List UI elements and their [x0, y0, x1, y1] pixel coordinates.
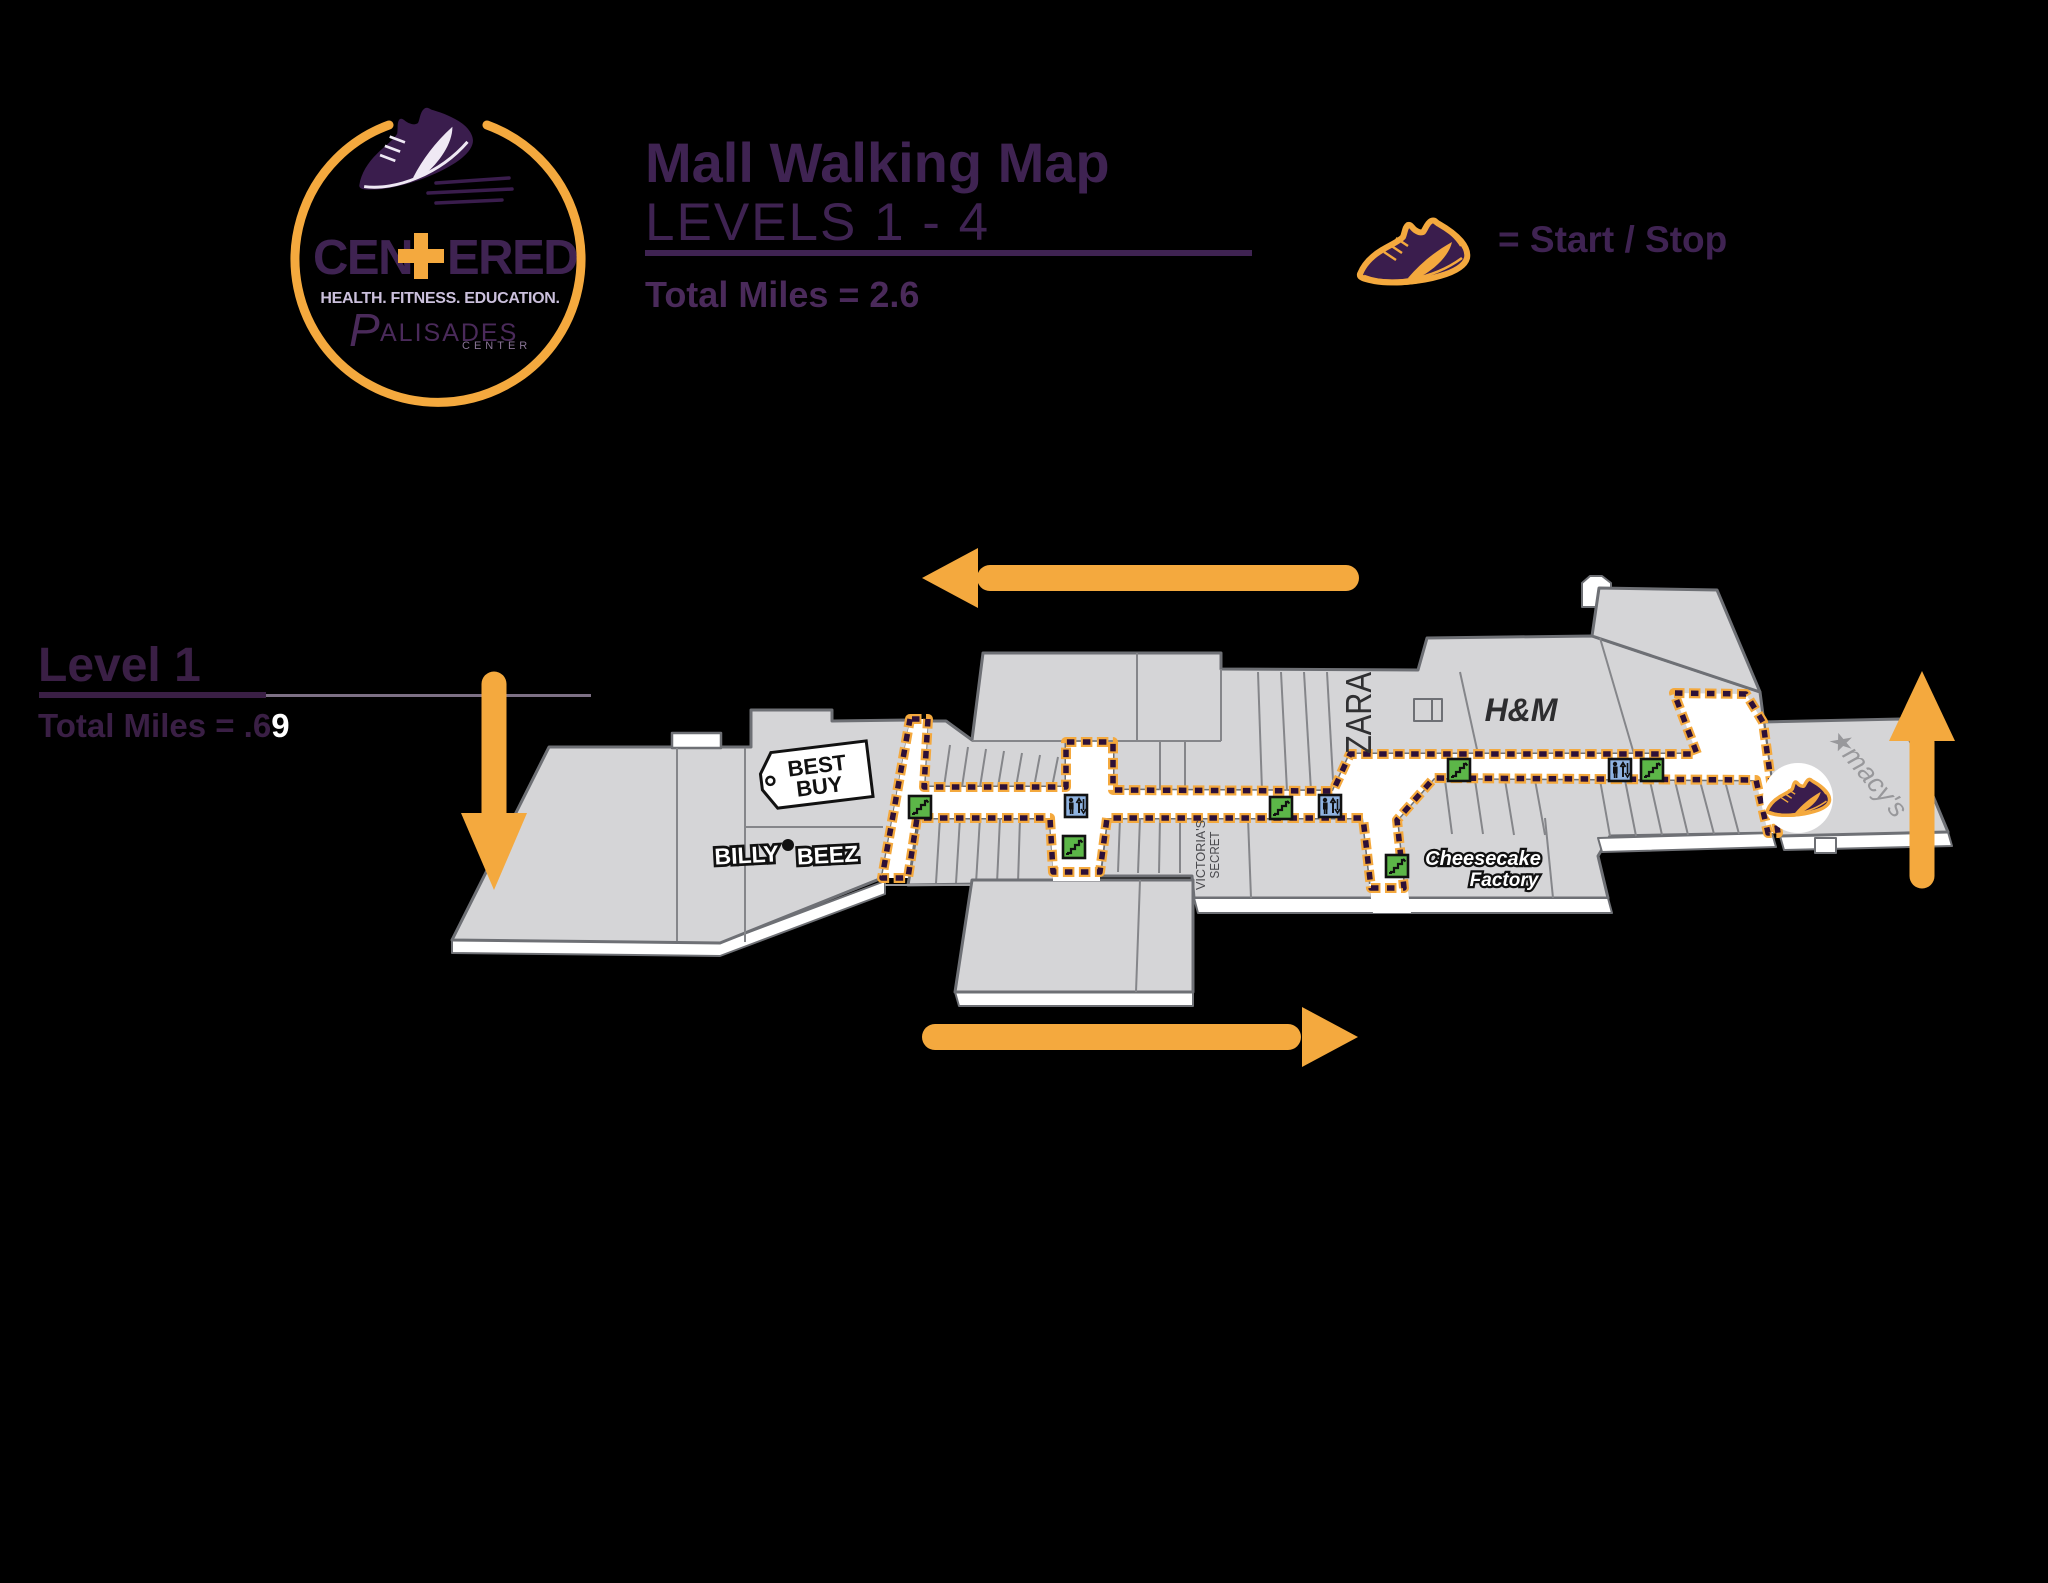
svg-text:Factory: Factory [1470, 870, 1540, 891]
svg-text:P: P [349, 304, 380, 356]
svg-text:= Start / Stop: = Start / Stop [1498, 219, 1727, 260]
svg-text:BEEZ: BEEZ [796, 840, 859, 869]
svg-text:CEN: CEN [313, 231, 412, 285]
svg-text:Level 1: Level 1 [38, 639, 201, 692]
svg-text:VICTORIA'S: VICTORIA'S [1193, 820, 1208, 890]
svg-text:Total Miles = .69: Total Miles = .69 [38, 707, 290, 744]
svg-text:ZARA: ZARA [1338, 672, 1379, 754]
svg-text:CENTER: CENTER [462, 340, 531, 352]
svg-text:Mall Walking Map: Mall Walking Map [645, 131, 1110, 194]
svg-text:SECRET: SECRET [1207, 831, 1222, 878]
svg-text:H&M: H&M [1485, 692, 1559, 728]
svg-text:LEVELS 1 - 4: LEVELS 1 - 4 [645, 193, 990, 252]
svg-text:Total Miles = 2.6: Total Miles = 2.6 [645, 274, 919, 315]
svg-text:BILLY: BILLY [714, 840, 780, 869]
svg-text:ERED: ERED [447, 231, 577, 285]
svg-text:Cheesecake: Cheesecake [1425, 848, 1541, 870]
